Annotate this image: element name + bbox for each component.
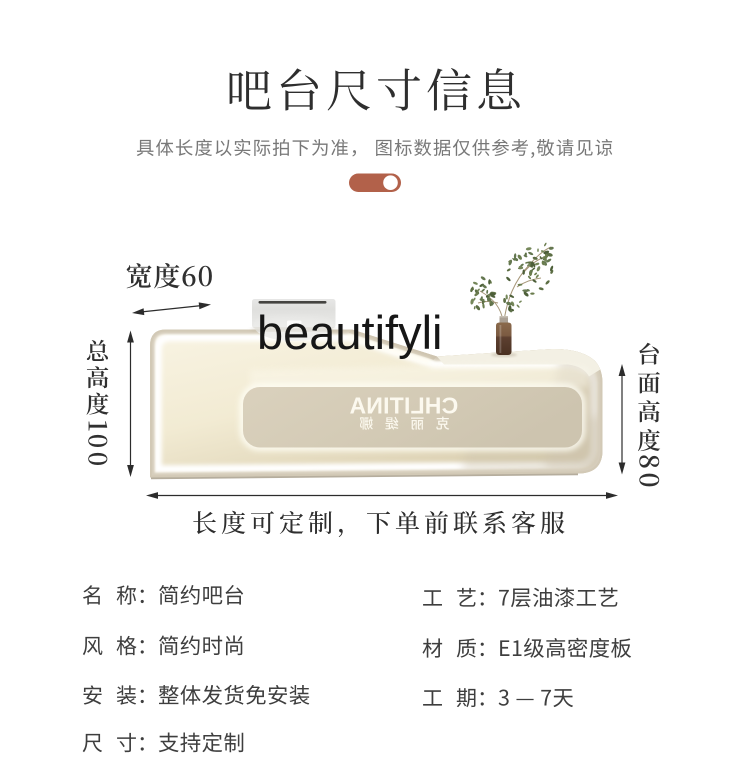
svg-text:CHLITINA: CHLITINA <box>349 393 458 419</box>
svg-text:beautifyli: beautifyli <box>257 306 443 359</box>
